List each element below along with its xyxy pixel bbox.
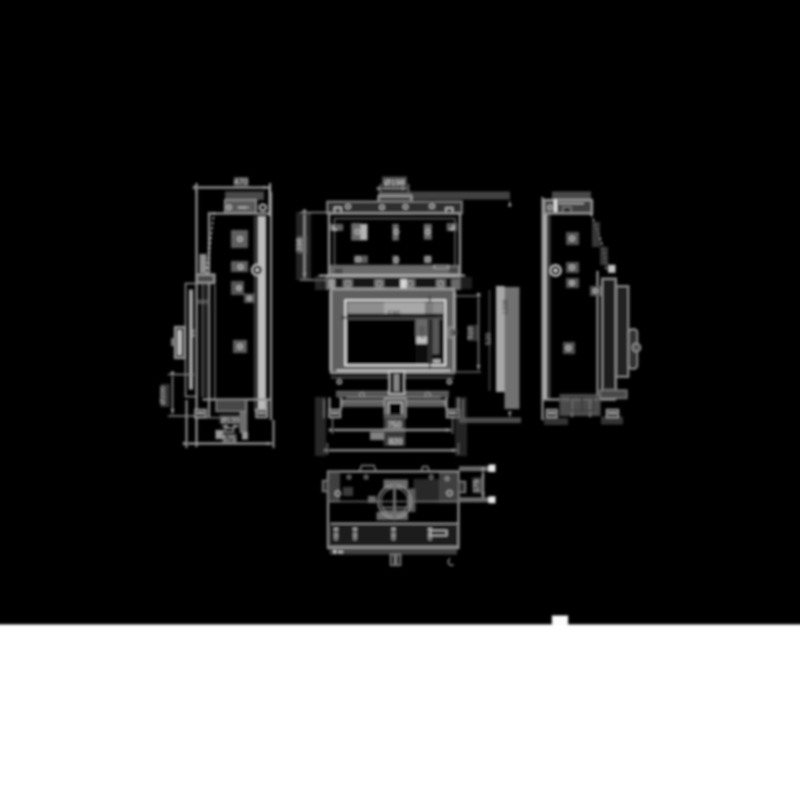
svg-text:Ø200: Ø200 bbox=[158, 386, 167, 404]
svg-text:Ø198: Ø198 bbox=[384, 178, 405, 188]
svg-text:470: 470 bbox=[234, 177, 248, 187]
svg-text:420: 420 bbox=[418, 326, 427, 339]
svg-text:820: 820 bbox=[389, 438, 403, 447]
svg-text:520: 520 bbox=[484, 333, 493, 346]
svg-text:575: 575 bbox=[223, 435, 237, 444]
svg-text:Ø120: Ø120 bbox=[221, 416, 239, 425]
svg-text:510: 510 bbox=[466, 327, 475, 340]
svg-text:1335: 1335 bbox=[503, 299, 510, 315]
svg-text:175: 175 bbox=[472, 480, 481, 493]
svg-text:750: 750 bbox=[388, 421, 402, 430]
svg-text:398: 398 bbox=[295, 238, 304, 252]
